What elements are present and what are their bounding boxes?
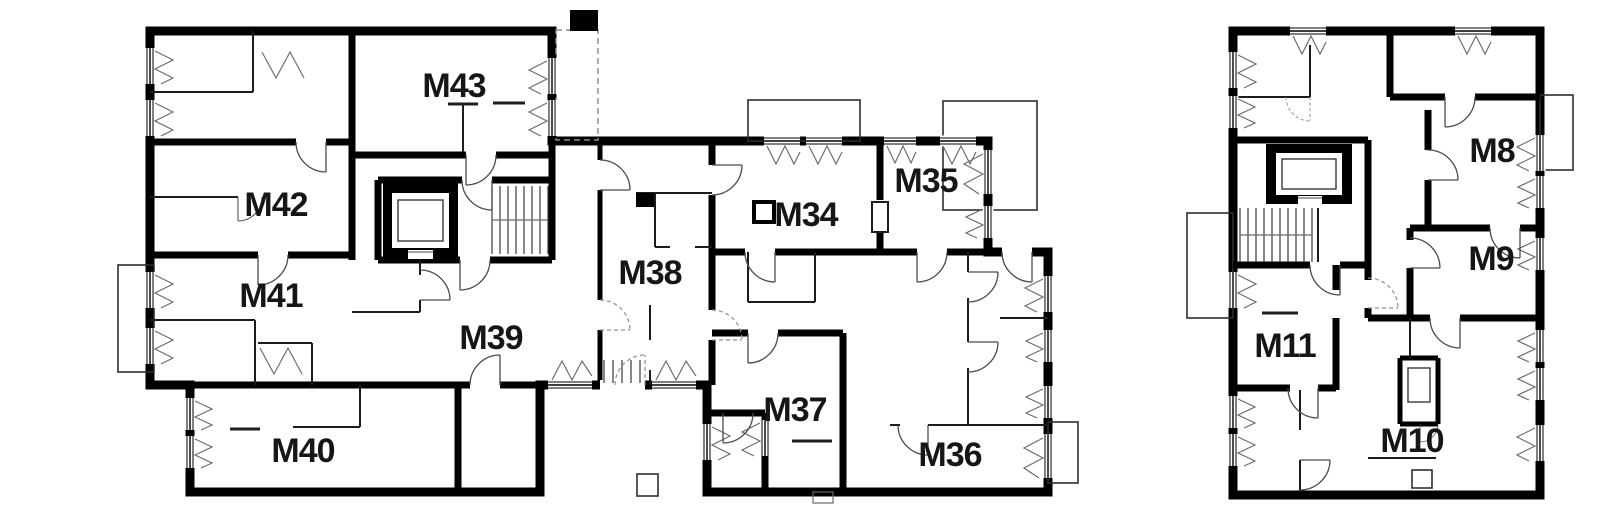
elevator-icon	[1266, 144, 1352, 205]
unit-label-m37: M37	[763, 391, 826, 429]
unit-label-m35: M35	[894, 162, 957, 200]
door-panel	[872, 202, 888, 232]
unit-label-m36: M36	[918, 436, 981, 474]
unit-label-m42: M42	[244, 186, 307, 224]
unit-label-m10: M10	[1380, 422, 1443, 460]
right-building: M8 M9 M11 M10	[1187, 26, 1573, 496]
unit-label-m43: M43	[422, 67, 485, 105]
floor-plan-canvas: M43 M42 M41 M40 M39 M38 M34 M35 M37 M36	[0, 0, 1600, 519]
unit-label-m11: M11	[1254, 327, 1315, 365]
left-building: M43 M42 M41 M40 M39 M38 M34 M35 M37 M36	[118, 10, 1078, 503]
wall-notch	[1412, 470, 1432, 488]
shaft-block	[570, 10, 598, 31]
unit-label-m34: M34	[774, 196, 838, 234]
unit-label-m38: M38	[618, 254, 681, 292]
unit-label-m39: M39	[459, 319, 522, 357]
unit-label-m40: M40	[271, 432, 334, 470]
unit-label-m8: M8	[1469, 132, 1514, 170]
wall-notch	[637, 474, 658, 496]
floor-plan-page: M43 M42 M41 M40 M39 M38 M34 M35 M37 M36	[0, 0, 1600, 519]
elevator-icon	[383, 183, 458, 259]
balcony-outline	[748, 100, 860, 141]
shaft-symbol	[754, 202, 774, 222]
dashed-canopy-outline	[556, 30, 598, 140]
unit-label-m9: M9	[1468, 240, 1513, 278]
door-gap	[1002, 246, 1032, 258]
unit-label-m41: M41	[239, 277, 302, 315]
balcony-outline	[1187, 213, 1233, 318]
